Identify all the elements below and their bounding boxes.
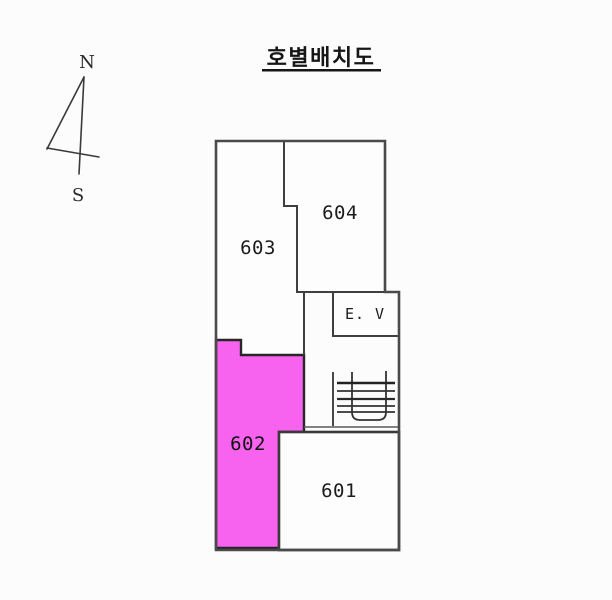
unit-603-label: 603 [240,237,276,259]
page-title: 호별배치도 [262,46,381,72]
floor-plan-page: 호별배치도 N S [0,0,612,600]
unit-604-label: 604 [322,202,358,224]
page-title-text: 호별배치도 [267,46,376,71]
compass-north-label: N [79,52,95,73]
unit-601-label: 601 [321,480,357,502]
floor-plan-figure: 호별배치도 N S [0,0,612,600]
compass-south-label: S [72,185,84,206]
elevator-label: E. V [345,305,385,323]
page-title-underline [262,69,381,72]
unit-602-label: 602 [230,433,266,455]
